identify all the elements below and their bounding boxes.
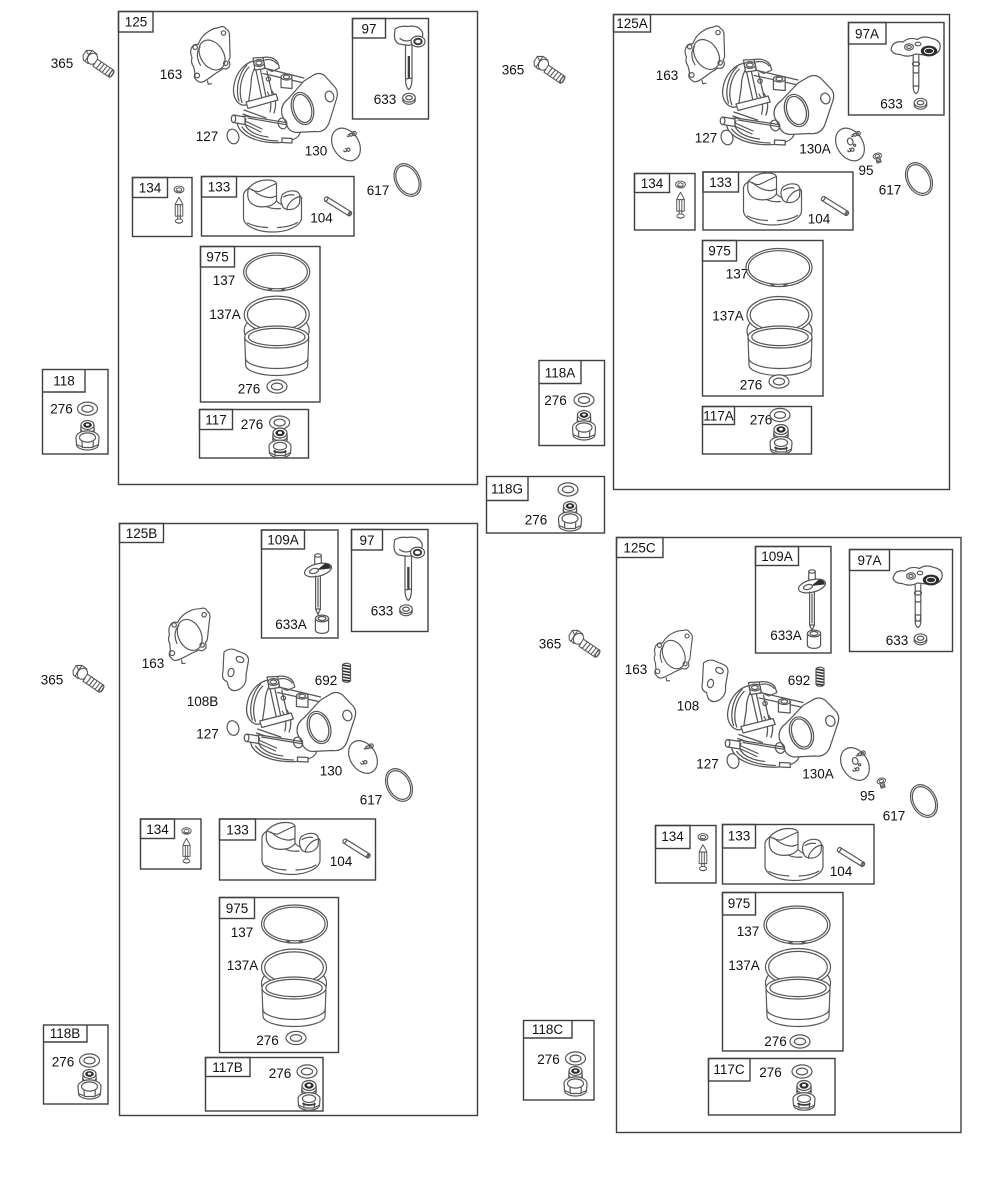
svg-text:125C: 125C <box>623 541 656 556</box>
svg-text:97: 97 <box>361 22 376 37</box>
svg-text:97A: 97A <box>857 553 881 568</box>
svg-text:133: 133 <box>226 823 249 838</box>
svg-text:118G: 118G <box>491 482 523 497</box>
svg-text:617: 617 <box>360 793 383 808</box>
svg-text:118B: 118B <box>50 1026 81 1041</box>
svg-text:109A: 109A <box>267 533 299 548</box>
svg-text:365: 365 <box>539 637 562 652</box>
svg-text:108B: 108B <box>187 694 219 709</box>
svg-text:95: 95 <box>858 163 873 178</box>
svg-text:276: 276 <box>759 1065 782 1080</box>
svg-text:137: 137 <box>213 273 236 288</box>
svg-text:137A: 137A <box>712 309 744 324</box>
svg-text:633A: 633A <box>770 628 802 643</box>
svg-text:130A: 130A <box>799 142 831 157</box>
svg-text:118: 118 <box>53 374 75 389</box>
svg-text:137A: 137A <box>728 958 760 973</box>
svg-text:276: 276 <box>740 378 763 393</box>
svg-text:692: 692 <box>315 673 338 688</box>
svg-text:127: 127 <box>696 757 719 772</box>
svg-text:633: 633 <box>880 97 903 112</box>
svg-text:276: 276 <box>50 402 73 417</box>
svg-text:276: 276 <box>269 1066 292 1081</box>
svg-text:109A: 109A <box>761 549 793 564</box>
svg-text:104: 104 <box>808 212 831 227</box>
svg-text:117: 117 <box>205 413 227 428</box>
svg-text:97: 97 <box>359 533 374 548</box>
svg-text:633A: 633A <box>275 617 307 632</box>
svg-text:276: 276 <box>544 393 567 408</box>
svg-text:276: 276 <box>256 1033 279 1048</box>
svg-text:617: 617 <box>883 809 906 824</box>
svg-text:975: 975 <box>708 244 731 259</box>
svg-text:134: 134 <box>146 822 169 837</box>
svg-text:134: 134 <box>661 829 684 844</box>
svg-text:276: 276 <box>525 513 548 528</box>
svg-text:137A: 137A <box>227 958 259 973</box>
svg-text:163: 163 <box>656 68 679 83</box>
svg-text:117A: 117A <box>703 409 734 424</box>
svg-text:692: 692 <box>788 673 811 688</box>
svg-text:117B: 117B <box>212 1060 243 1075</box>
svg-text:633: 633 <box>374 92 397 107</box>
svg-text:118A: 118A <box>545 366 576 381</box>
svg-text:133: 133 <box>728 829 751 844</box>
svg-text:133: 133 <box>709 175 732 190</box>
svg-text:97A: 97A <box>855 27 879 42</box>
svg-text:125B: 125B <box>126 526 158 541</box>
svg-text:276: 276 <box>750 413 773 428</box>
svg-text:130A: 130A <box>802 767 834 782</box>
svg-text:137: 137 <box>726 267 749 282</box>
svg-text:276: 276 <box>241 417 264 432</box>
svg-text:617: 617 <box>879 183 902 198</box>
svg-text:125A: 125A <box>616 16 648 31</box>
svg-text:137A: 137A <box>209 307 241 322</box>
svg-text:104: 104 <box>330 854 353 869</box>
svg-text:127: 127 <box>695 131 718 146</box>
svg-text:975: 975 <box>728 896 751 911</box>
svg-text:130: 130 <box>305 144 328 159</box>
svg-text:617: 617 <box>367 183 390 198</box>
svg-text:975: 975 <box>226 901 249 916</box>
svg-text:365: 365 <box>41 673 64 688</box>
svg-text:104: 104 <box>830 864 853 879</box>
svg-text:975: 975 <box>206 250 229 265</box>
svg-text:127: 127 <box>196 129 219 144</box>
svg-text:163: 163 <box>142 656 165 671</box>
svg-text:95: 95 <box>860 789 875 804</box>
svg-text:125: 125 <box>125 15 148 30</box>
svg-text:365: 365 <box>502 63 525 78</box>
svg-text:104: 104 <box>310 211 333 226</box>
svg-text:118C: 118C <box>532 1022 564 1037</box>
svg-text:130: 130 <box>320 764 343 779</box>
svg-text:137: 137 <box>737 924 760 939</box>
svg-text:133: 133 <box>208 180 231 195</box>
svg-text:633: 633 <box>886 633 909 648</box>
svg-text:134: 134 <box>641 176 664 191</box>
svg-text:276: 276 <box>764 1034 787 1049</box>
svg-text:134: 134 <box>139 181 162 196</box>
svg-text:276: 276 <box>537 1052 560 1067</box>
svg-text:633: 633 <box>371 604 394 619</box>
svg-text:365: 365 <box>51 56 74 71</box>
svg-text:276: 276 <box>52 1055 75 1070</box>
svg-text:117C: 117C <box>713 1062 745 1077</box>
svg-text:276: 276 <box>238 382 261 397</box>
svg-text:163: 163 <box>160 67 183 82</box>
svg-text:127: 127 <box>196 727 219 742</box>
svg-text:163: 163 <box>625 662 648 677</box>
svg-text:137: 137 <box>231 925 254 940</box>
svg-text:108: 108 <box>677 699 700 714</box>
